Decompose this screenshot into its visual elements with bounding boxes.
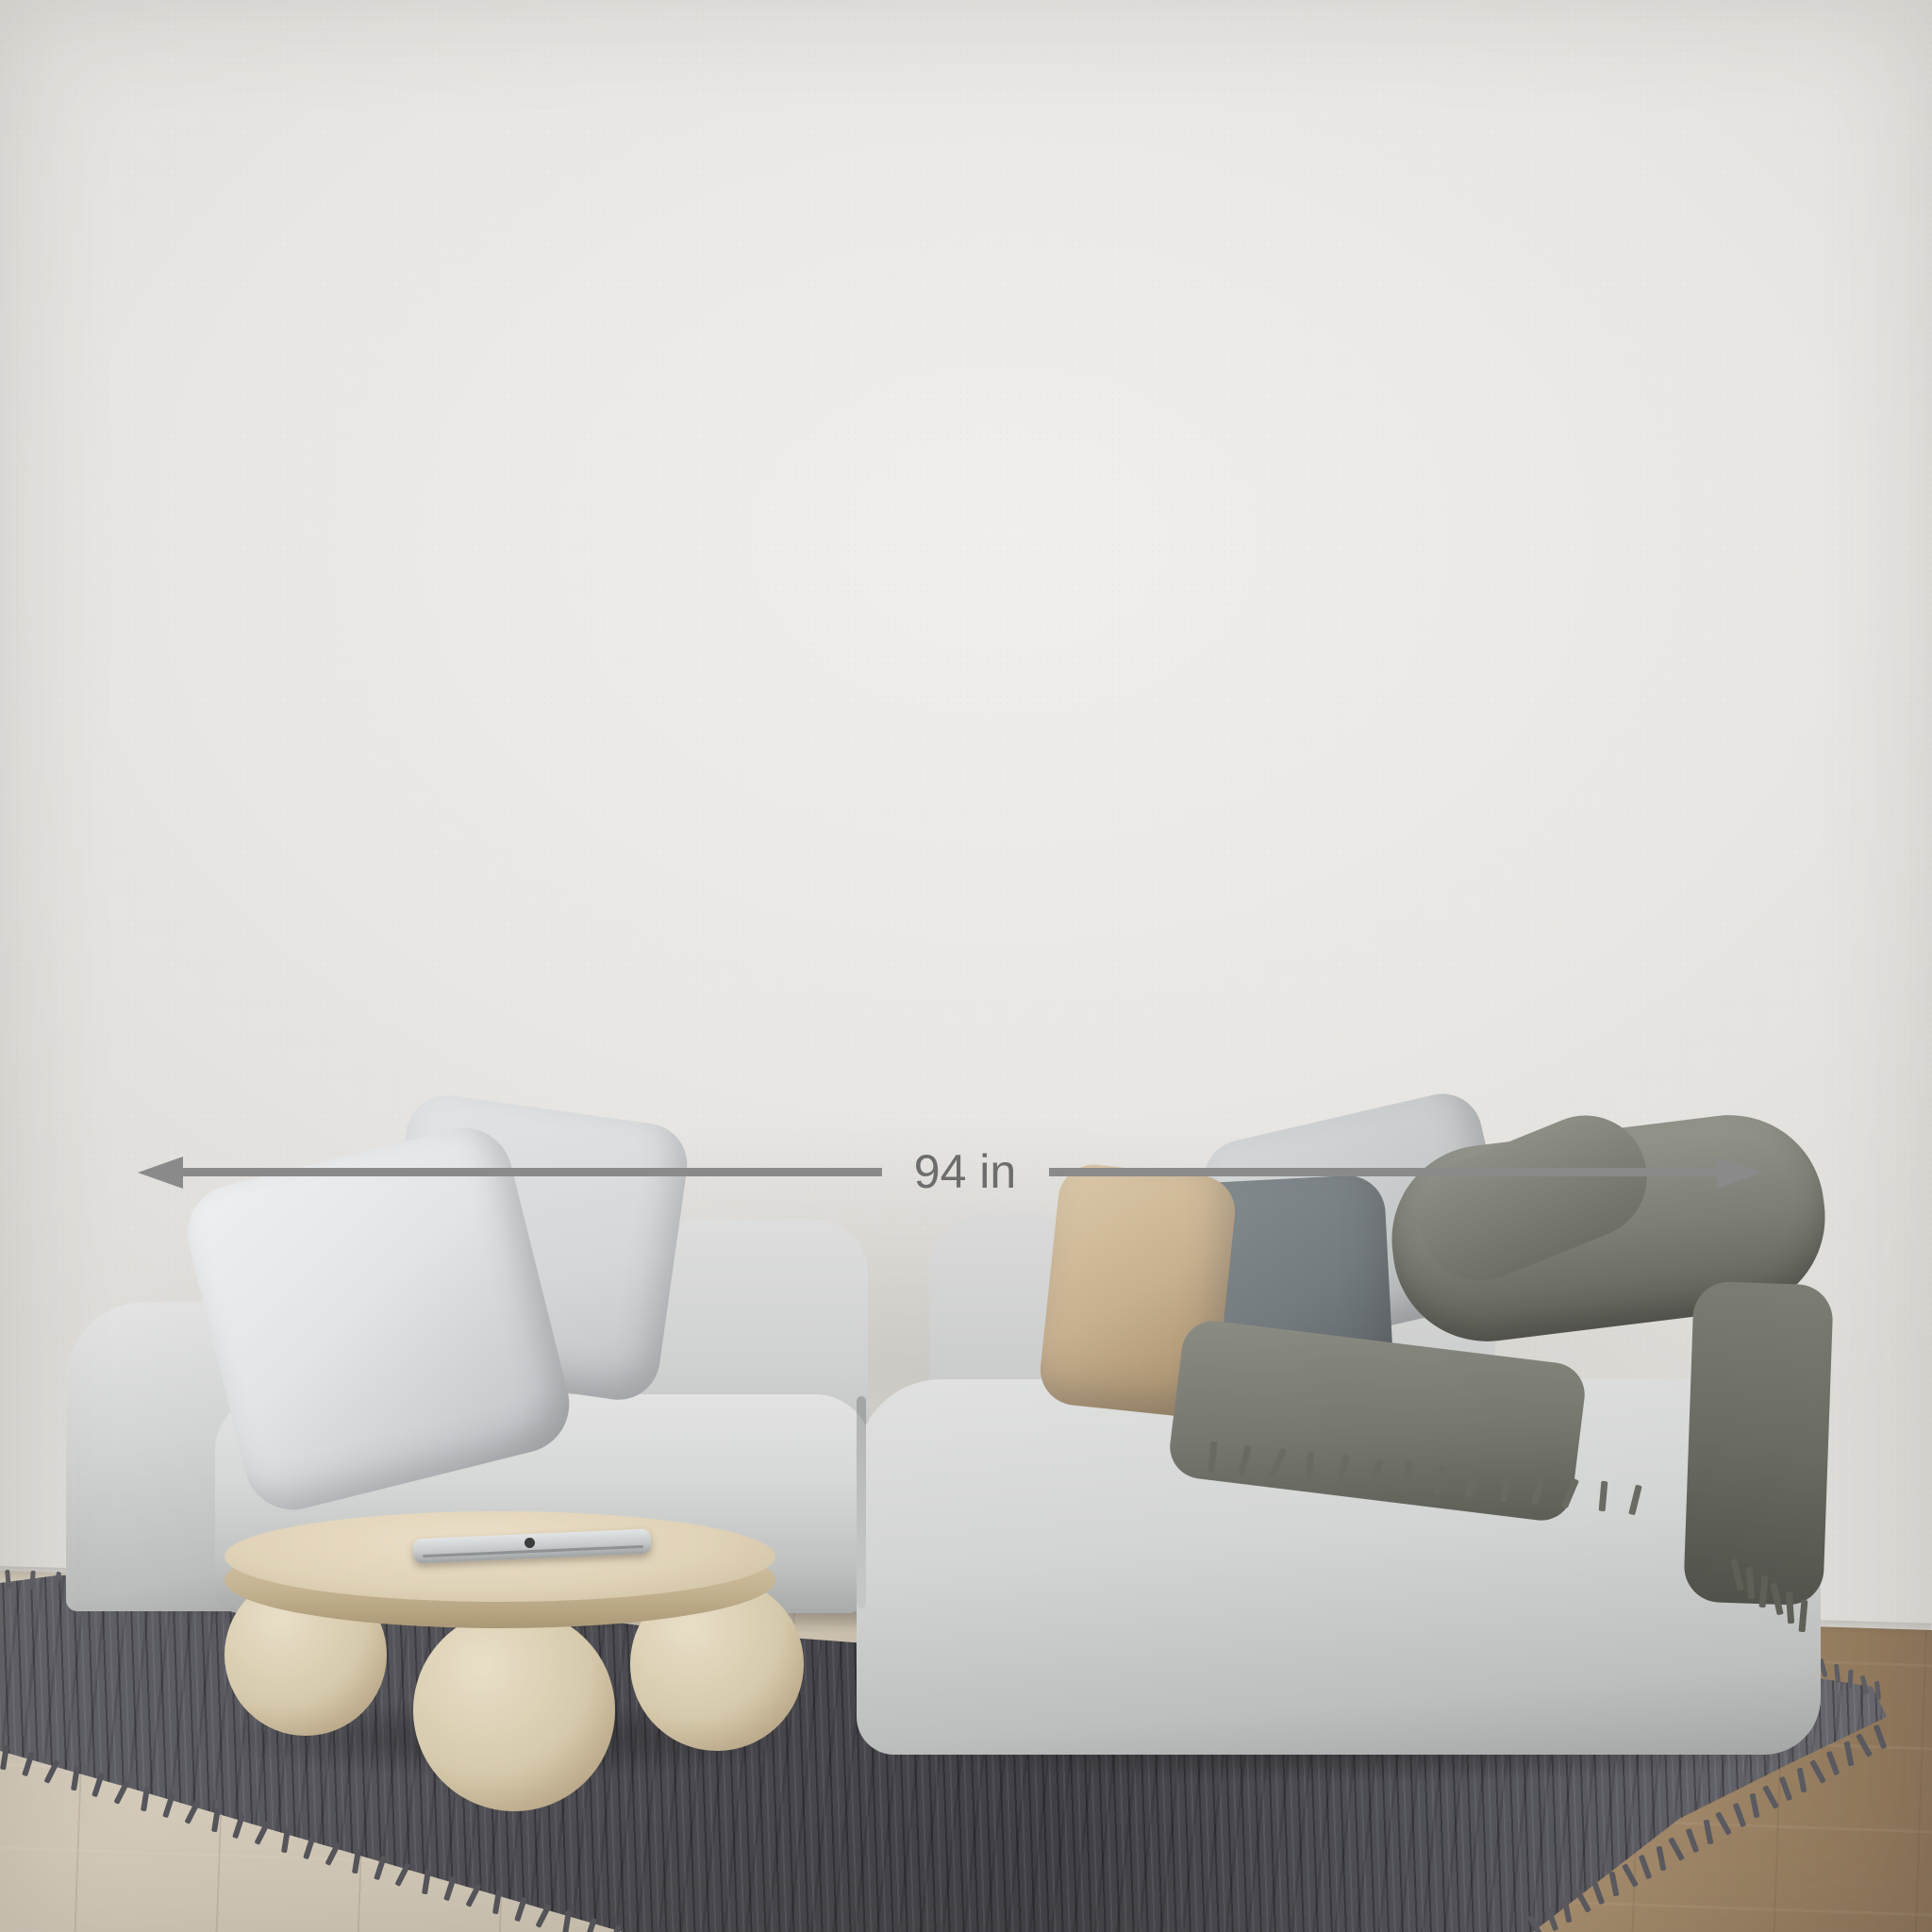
table-ball-leg-center	[413, 1609, 615, 1811]
laptop-camera-dot	[525, 1538, 535, 1548]
arrow-head-right	[1717, 1157, 1762, 1189]
arrow-head-left	[138, 1157, 183, 1189]
wall-art-size-guide-mockup: 90 in X 60 in72 in X 48 in60 in X 40 in4…	[0, 0, 1932, 1932]
measurement-label: 94 in	[852, 1141, 1078, 1203]
arrow-line-left	[168, 1168, 882, 1176]
arrow-line-right	[1049, 1168, 1724, 1176]
throw-blanket-side-drop	[1683, 1281, 1834, 1607]
rug-fur-tuft	[1847, 1670, 1853, 1689]
sofa-cushion-seam	[857, 1396, 866, 1608]
